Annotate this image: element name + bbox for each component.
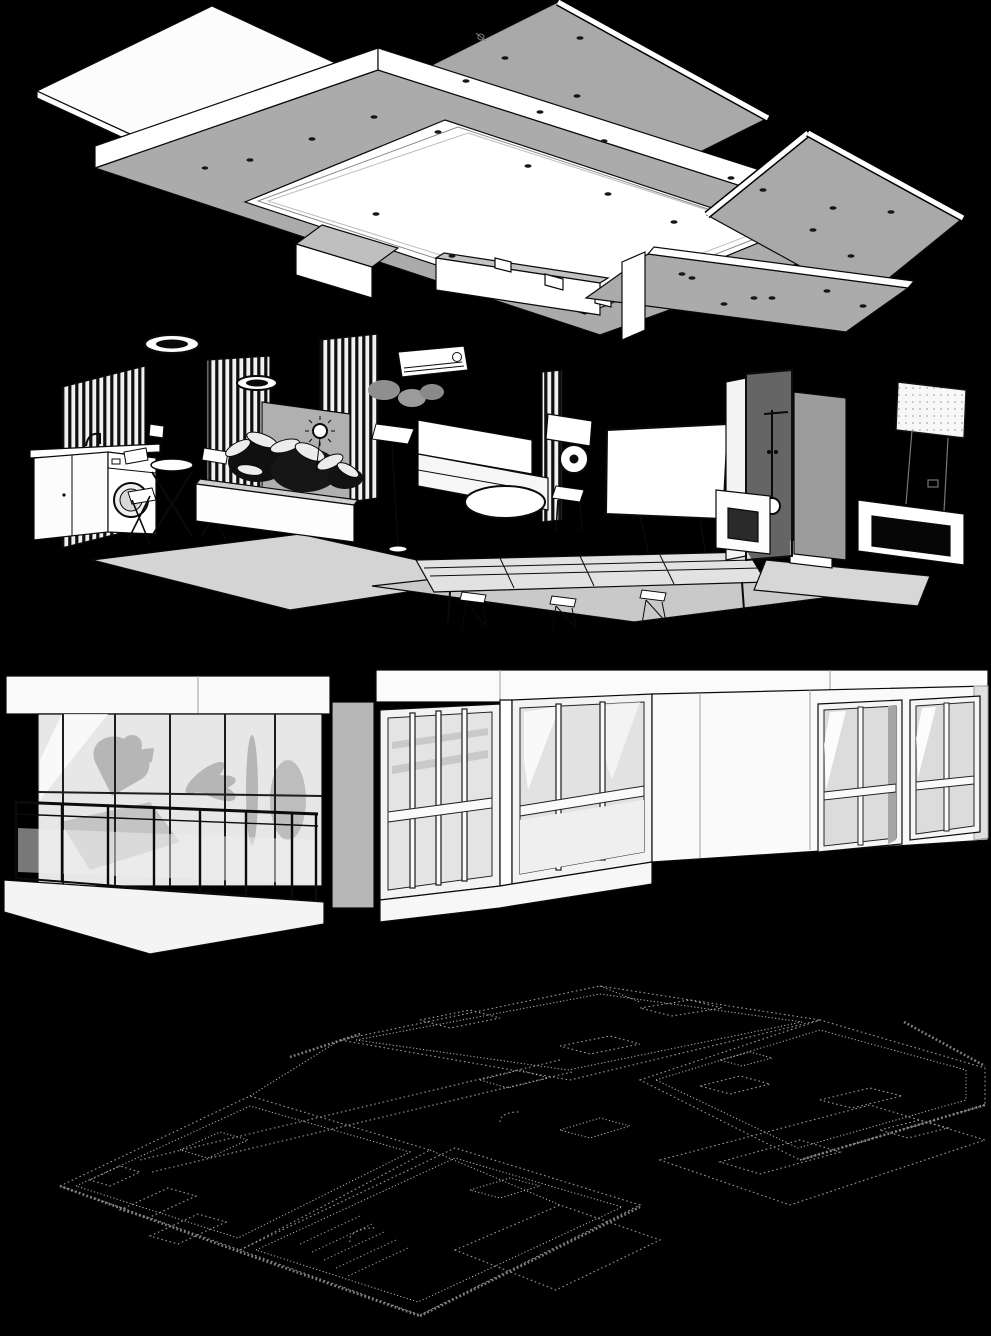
plan-room-bottom [240,1148,640,1315]
plan-stair-ticks [300,1216,408,1276]
desk-frame [858,500,964,565]
plan-ghost-furniture [180,986,772,1205]
plan-corridor [140,1060,560,1160]
window-2 [910,696,980,840]
drawing-canvas [0,0,991,1336]
pegboard [896,382,966,512]
wall-art [149,424,164,438]
vanity [716,490,770,554]
projection-screen [606,424,728,560]
ac-unit [398,346,468,377]
sunroom-corner [380,694,652,922]
tiny-tag [928,480,938,487]
ring-lamp-large [145,335,199,353]
exploded-axon-drawing [0,0,991,1336]
plan-room-right [640,1020,985,1160]
fascia-band-left [6,676,330,714]
balcony-slab [4,880,324,954]
layer-building-envelope [4,670,988,954]
side-chair [552,486,584,530]
gray-foliage-blobs [368,380,444,407]
plan-room-right-low [660,1105,985,1205]
sprinkler-icon [476,33,486,41]
window-1 [818,700,902,852]
pouf [465,486,545,518]
right-wall [652,686,988,862]
corner-mullion [500,700,512,886]
plan-wall-hatch [60,1022,985,1316]
layer-interior-furnishings [30,334,966,630]
layer-floor-plan-ghost [60,986,985,1316]
ring-lamp-small [237,376,277,390]
fan [560,445,588,473]
layer-ceiling-assembly [37,2,963,340]
recessed-pilaster [332,702,374,908]
